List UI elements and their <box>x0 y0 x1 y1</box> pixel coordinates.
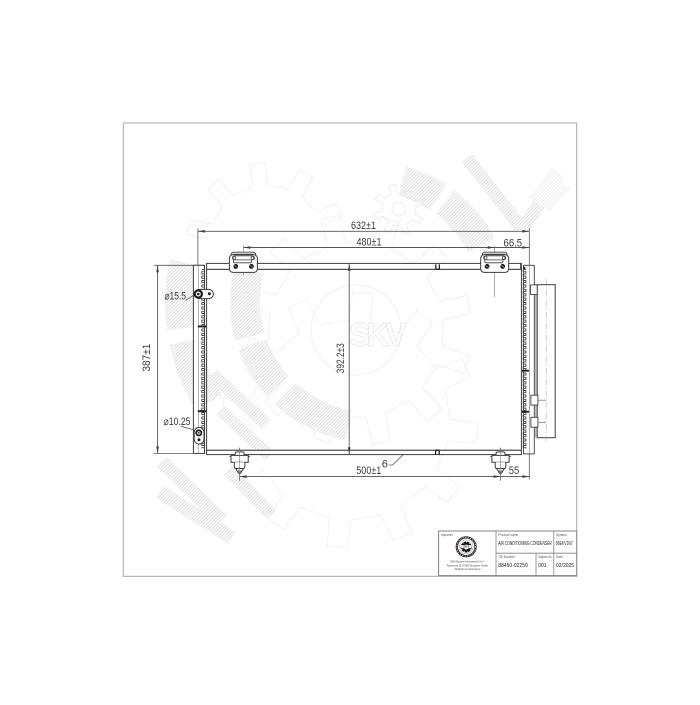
svg-text:SKV: SKV <box>463 545 469 549</box>
svg-text:480±1: 480±1 <box>357 236 382 248</box>
svg-text:Importer: Importer <box>441 533 454 537</box>
svg-text:⌀10.25: ⌀10.25 <box>164 416 191 428</box>
svg-text:02/2025: 02/2025 <box>556 563 574 569</box>
svg-text:86EKV1N7: 86EKV1N7 <box>556 541 573 547</box>
svg-text:Date: Date <box>556 555 563 559</box>
svg-text:AIR CONDITIONING CONDENSER: AIR CONDITIONING CONDENSER <box>498 541 552 547</box>
svg-text:55: 55 <box>509 465 520 477</box>
svg-text:info@skv.pl, www.skv.pl: info@skv.pl, www.skv.pl <box>454 567 480 571</box>
svg-text:6: 6 <box>382 459 388 471</box>
svg-text:392.2±3: 392.2±3 <box>335 343 347 373</box>
svg-text:632±1: 632±1 <box>351 220 376 232</box>
svg-text:Product name: Product name <box>498 533 518 537</box>
svg-text:Symbol: Symbol <box>556 533 567 537</box>
svg-text:⌀15.5: ⌀15.5 <box>164 290 186 302</box>
svg-text:001: 001 <box>538 563 547 569</box>
svg-text:OE Number: OE Number <box>498 555 516 559</box>
svg-text:88450-02250: 88450-02250 <box>498 563 528 569</box>
svg-text:66.5: 66.5 <box>504 237 523 249</box>
svg-text:Diagram No.: Diagram No. <box>538 555 552 559</box>
svg-text:387±1: 387±1 <box>141 344 153 372</box>
svg-text:500±1: 500±1 <box>356 465 381 477</box>
svg-text:SKV: SKV <box>349 316 407 353</box>
